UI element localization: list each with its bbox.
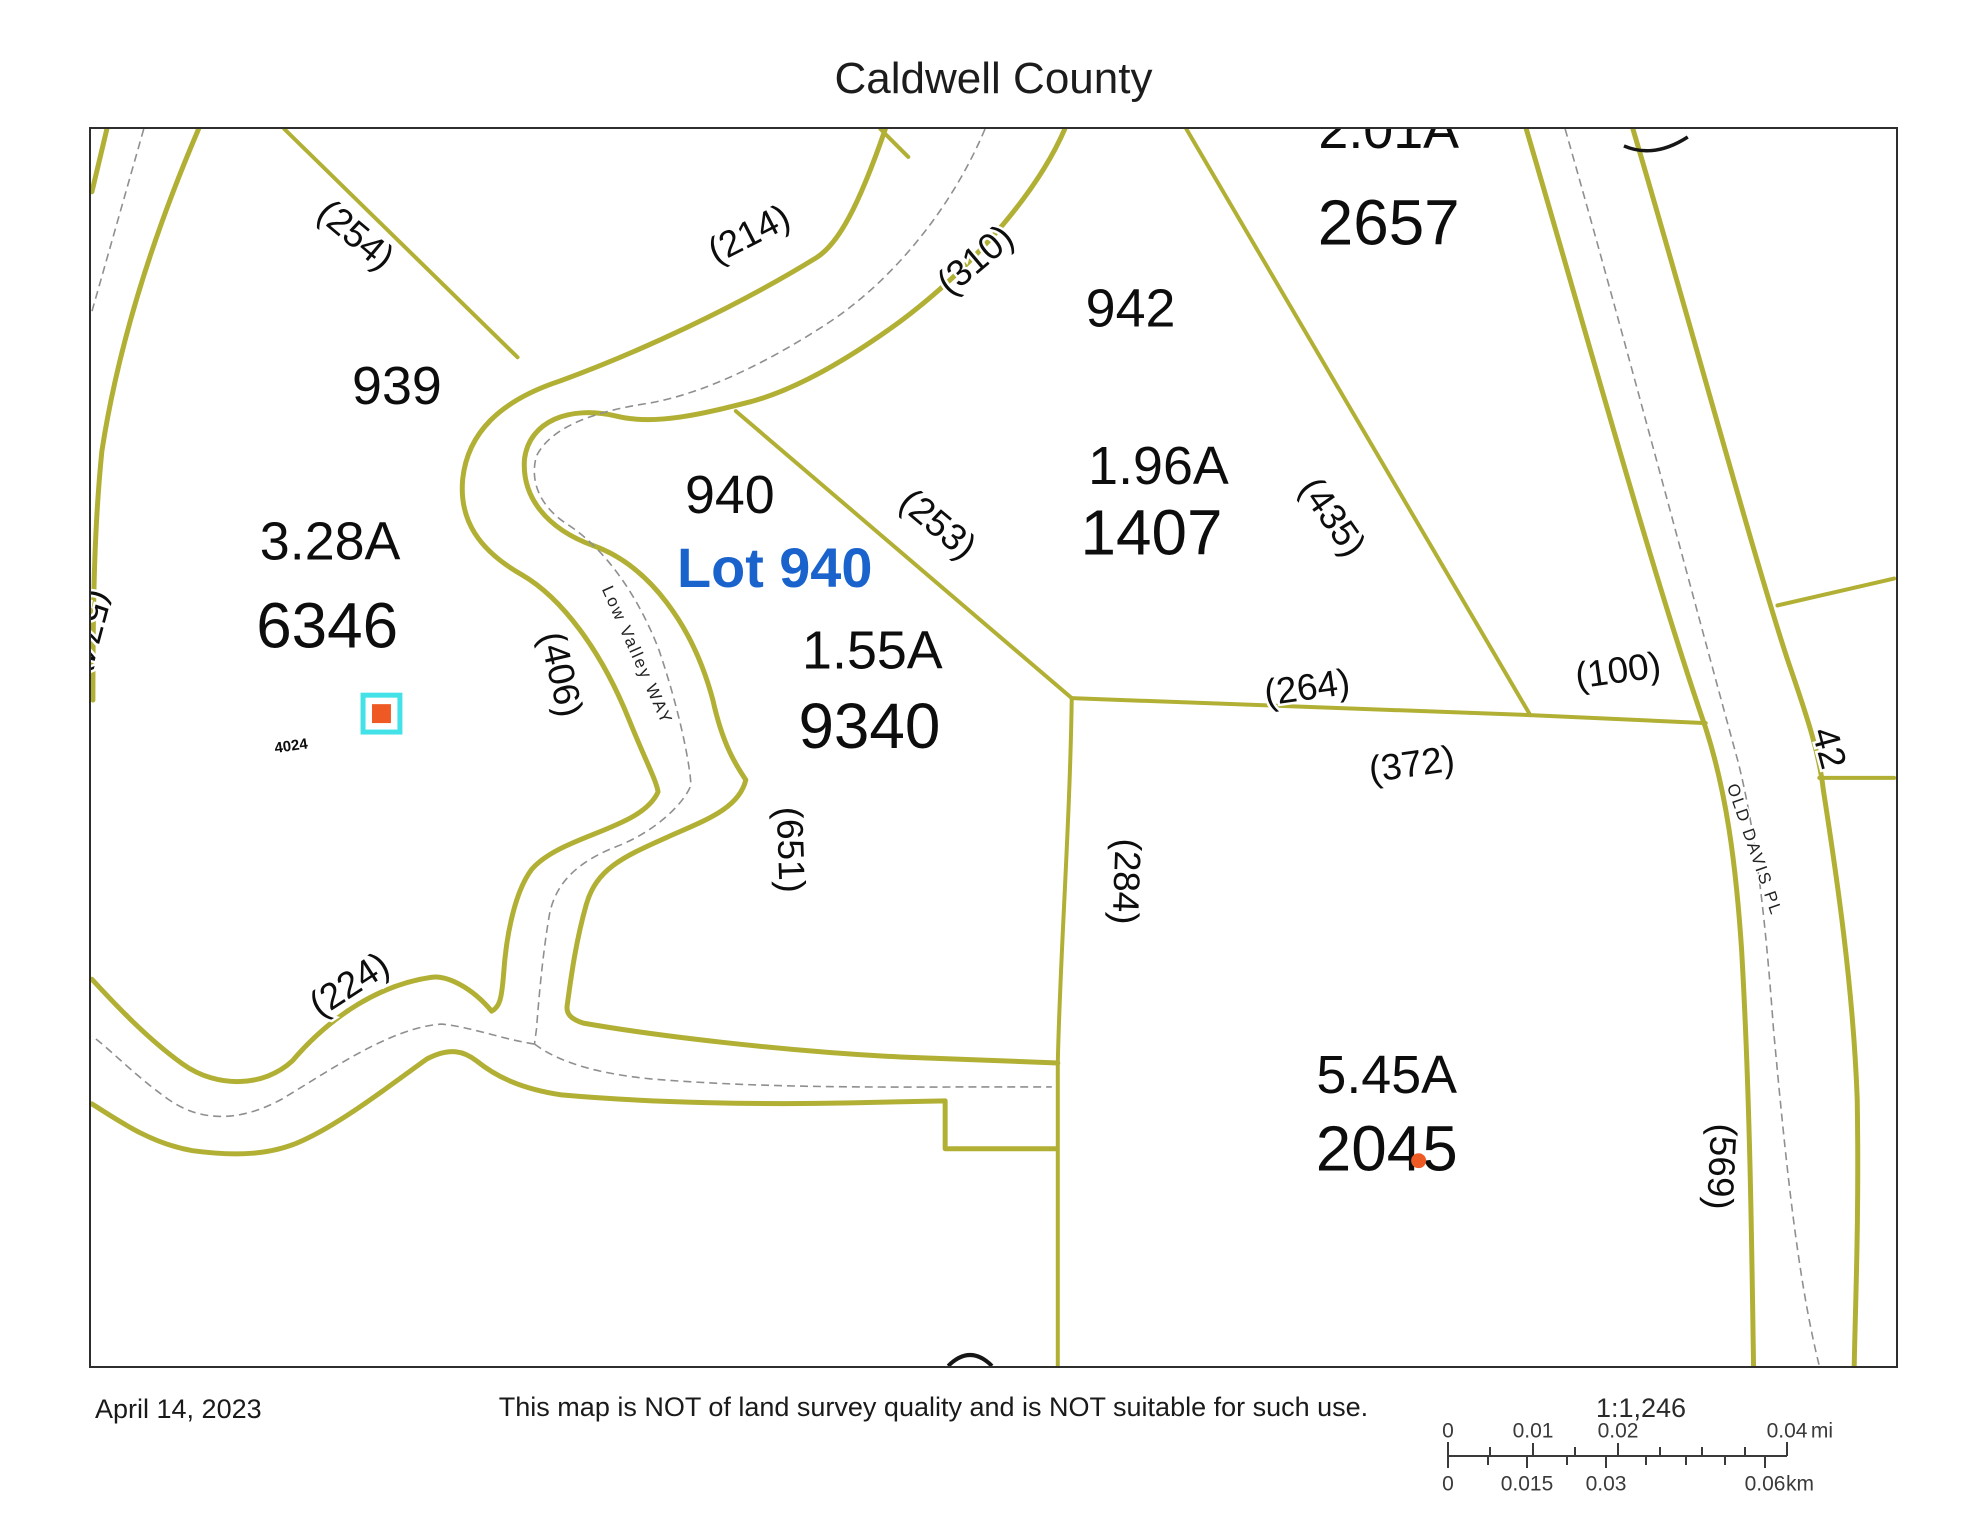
map-export-page: Caldwell County <box>0 0 1988 1536</box>
seg-label-214: (214) <box>701 196 796 272</box>
scale-mi-unit: mi <box>1811 1420 1833 1443</box>
boundary-spur-top <box>880 129 908 157</box>
seg-label-569: (569) <box>1699 1123 1744 1211</box>
clipped-label-arc-bottom <box>948 1355 992 1366</box>
acreage-6346: 3.28A <box>260 512 401 572</box>
scale-mi-002: 0.02 <box>1598 1420 1639 1443</box>
scale-km-unit: km <box>1786 1473 1814 1496</box>
seg-label-574-clipped: (574) <box>91 585 120 679</box>
scale-mi-001: 0.01 <box>1513 1420 1554 1443</box>
lot-number-942: 942 <box>1086 278 1176 338</box>
scale-km-0: 0 <box>1442 1473 1454 1496</box>
marker-point-icon <box>372 704 391 723</box>
seg-label-435: (435) <box>1291 470 1374 564</box>
low-valley-west-edge <box>92 129 885 1082</box>
address-dot-2045 <box>1411 1153 1426 1168</box>
acreage-9340: 1.55A <box>802 620 943 680</box>
selected-lot-label: Lot 940 <box>677 536 872 599</box>
acreage-2045: 5.45A <box>1316 1045 1457 1105</box>
parcel-id-9340: 9340 <box>798 690 940 762</box>
boundary-284 <box>1058 698 1072 1366</box>
seg-label-406: (406) <box>532 628 591 721</box>
boundary-northeast-sliver <box>1777 579 1894 606</box>
scale-km-0015: 0.015 <box>1501 1473 1554 1496</box>
acreage-1407: 1.96A <box>1088 436 1229 496</box>
scale-km-003: 0.03 <box>1586 1473 1627 1496</box>
scale-mi-004: 0.04 <box>1767 1420 1808 1443</box>
scale-ratio: 1:1,246 <box>1596 1393 1686 1423</box>
old-davis-centerline <box>1565 129 1819 1366</box>
parcel-id-2657: 2657 <box>1318 187 1460 259</box>
marker-address-label: 4024 <box>273 735 309 757</box>
scale-mi-ticks <box>1448 1442 1787 1456</box>
road-edge <box>92 129 107 192</box>
page-title: Caldwell County <box>89 54 1898 104</box>
seg-label-254: (254) <box>310 191 402 278</box>
acreage-2657-clipped: 2.01A <box>1318 129 1459 160</box>
parcel-id-6346: 6346 <box>256 589 398 661</box>
boundary-264-372-100 <box>1072 698 1706 723</box>
scale-bar: 1:1,246 0 0.01 0.02 0.04 mi 0 0.015 0.03… <box>1425 1385 1900 1515</box>
scale-mi-0: 0 <box>1442 1420 1454 1443</box>
seg-label-284: (284) <box>1105 838 1149 925</box>
parcel-id-1407: 1407 <box>1081 497 1223 569</box>
seg-label-264: (264) <box>1262 661 1353 714</box>
seg-label-372: (372) <box>1366 738 1457 791</box>
parcel-id-2045: 2045 <box>1316 1113 1458 1185</box>
seg-label-100: (100) <box>1572 644 1663 697</box>
scale-km-ticks <box>1448 1456 1765 1468</box>
seg-label-651: (651) <box>769 806 813 893</box>
parcel-map-svg: 939 3.28A 6346 940 Lot 940 1.55A 9340 94… <box>91 129 1896 1366</box>
scale-km-006: 0.06 <box>1745 1473 1786 1496</box>
boundary-254 <box>284 129 517 357</box>
lot-number-939: 939 <box>352 356 442 416</box>
low-valley-south-edge <box>92 1052 1056 1154</box>
address-marker-4024: 4024 <box>273 695 399 757</box>
map-canvas: 939 3.28A 6346 940 Lot 940 1.55A 9340 94… <box>89 127 1898 1368</box>
lot-number-940: 940 <box>685 465 775 525</box>
